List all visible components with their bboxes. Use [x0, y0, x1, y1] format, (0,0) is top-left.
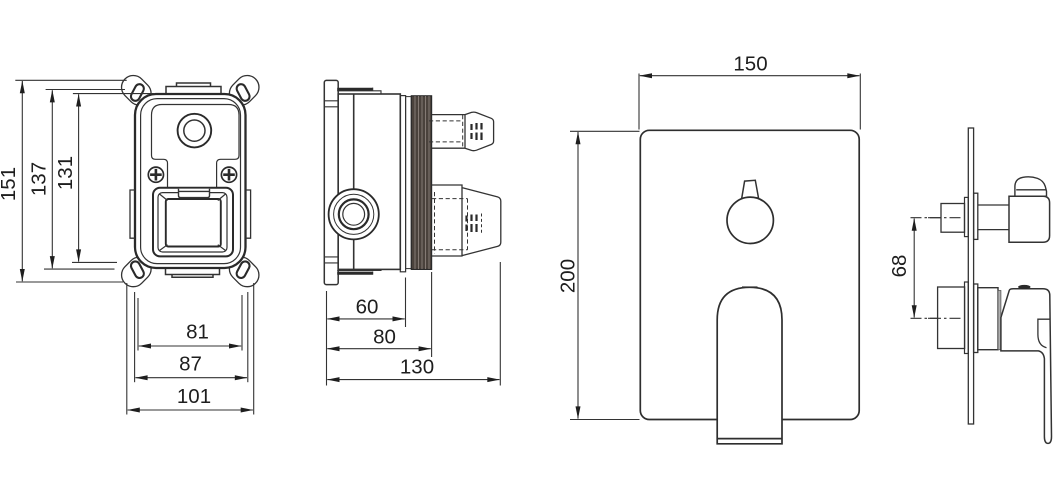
- svg-text:80: 80: [373, 325, 396, 348]
- svg-text:200: 200: [557, 259, 580, 293]
- svg-text:87: 87: [179, 353, 202, 376]
- svg-text:151: 151: [0, 167, 20, 201]
- svg-text:81: 81: [186, 321, 209, 344]
- svg-text:131: 131: [54, 156, 77, 190]
- svg-text:68: 68: [888, 255, 911, 278]
- svg-text:101: 101: [177, 385, 211, 408]
- svg-text:130: 130: [400, 356, 434, 379]
- svg-text:60: 60: [356, 296, 379, 319]
- svg-text:150: 150: [733, 52, 767, 75]
- svg-text:137: 137: [28, 162, 51, 196]
